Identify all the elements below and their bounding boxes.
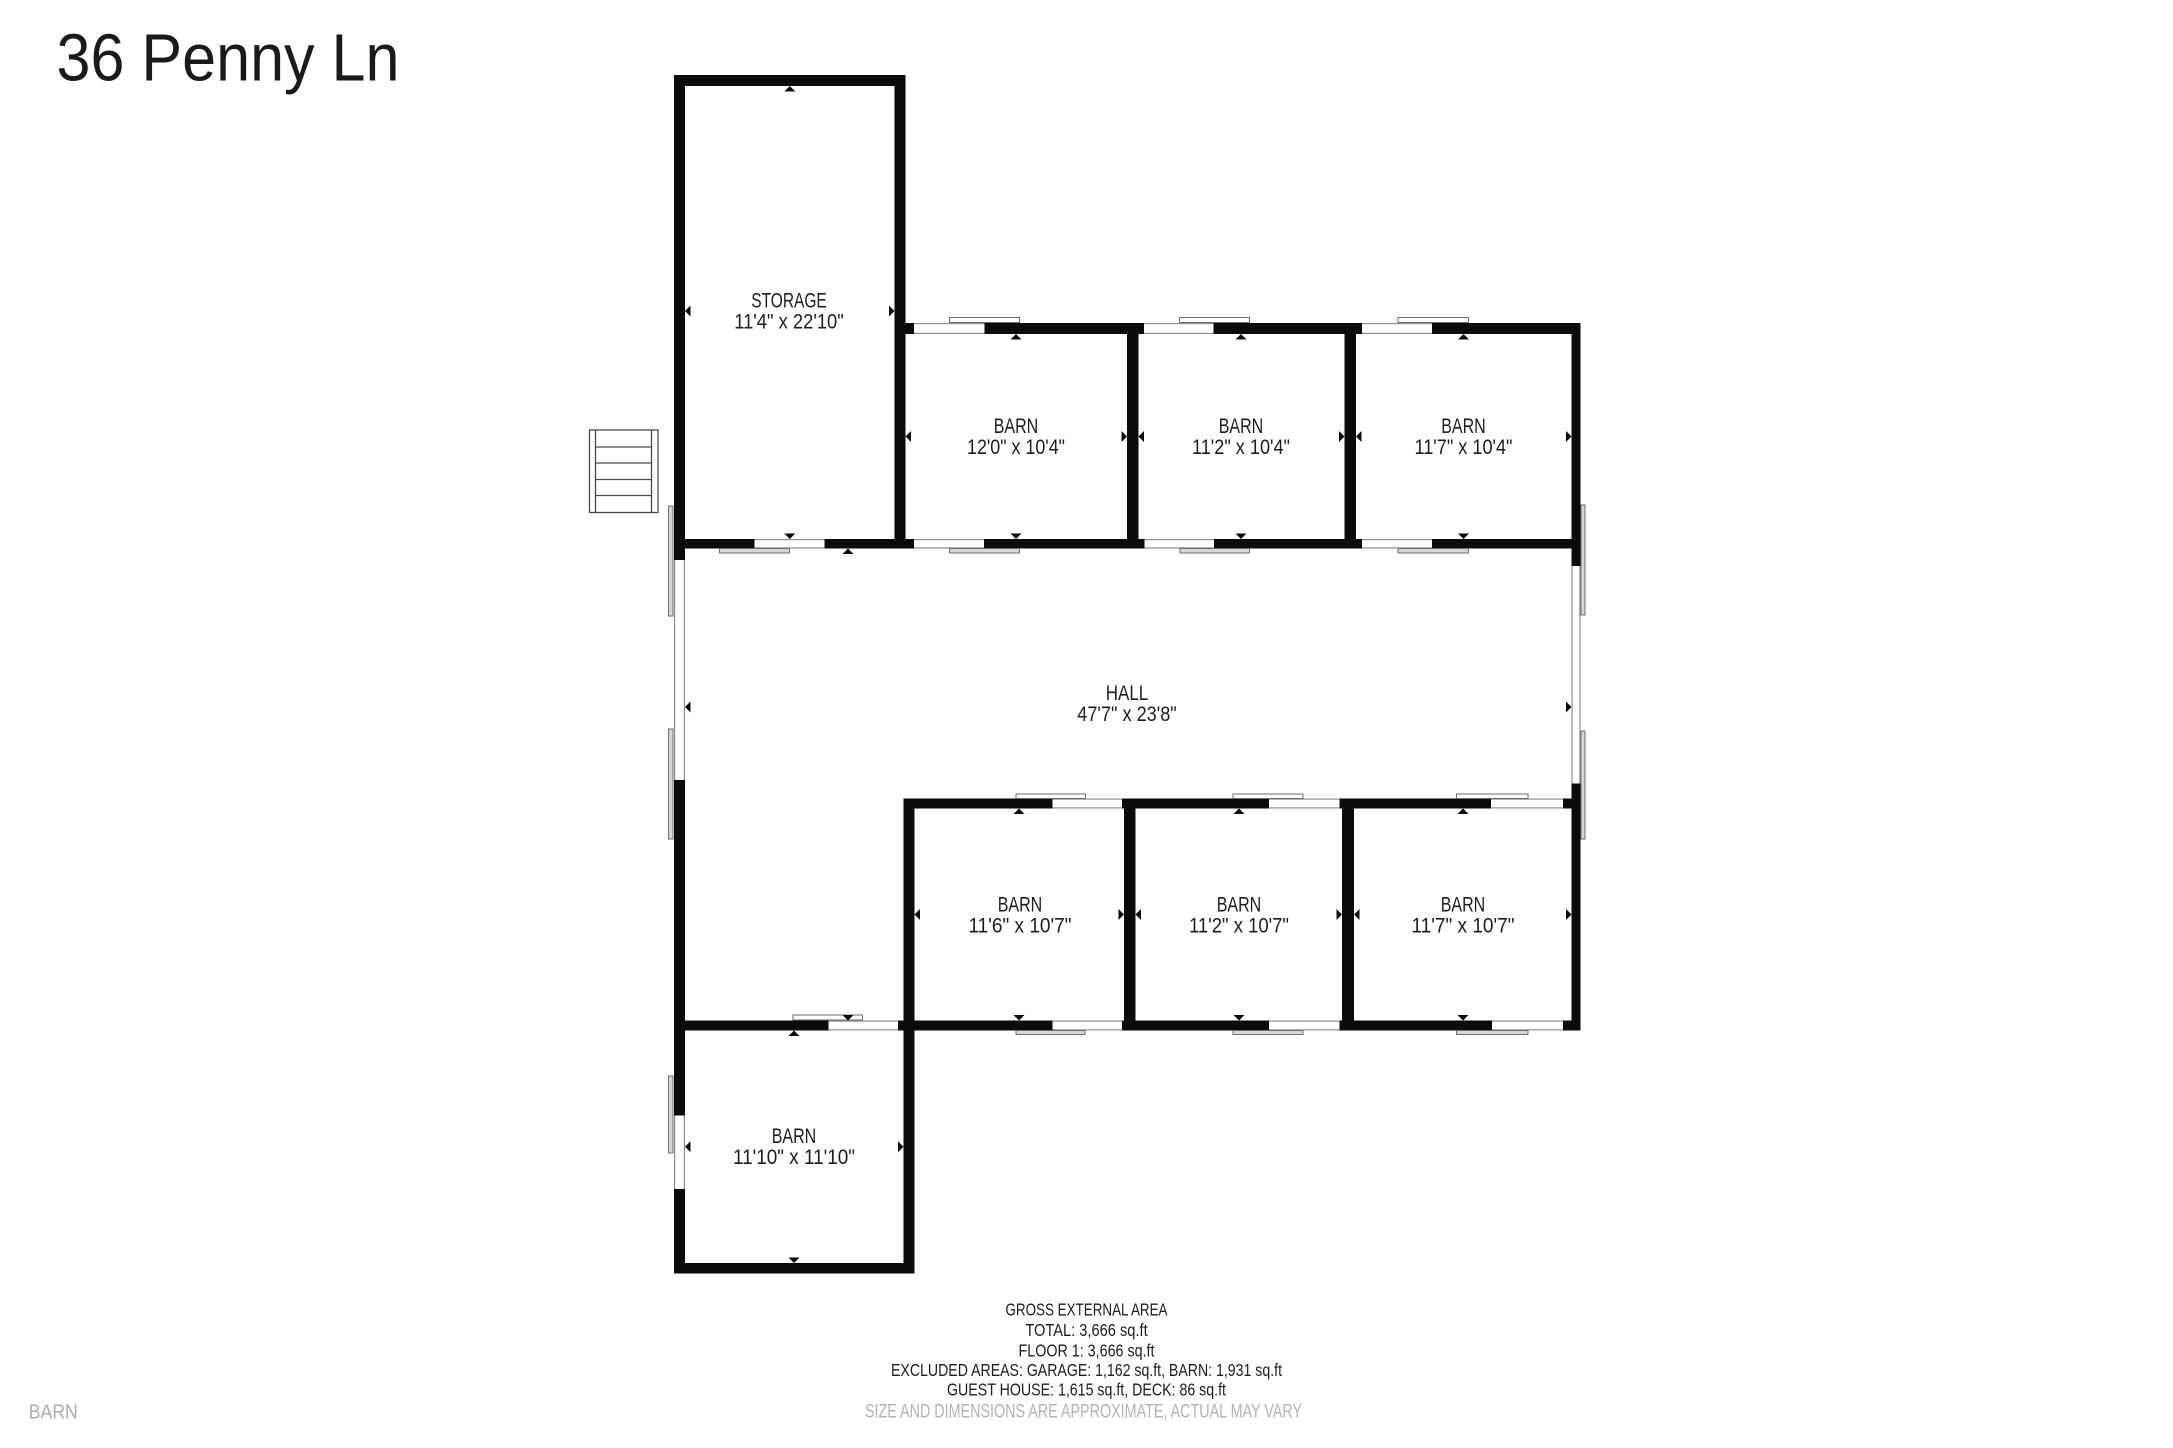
svg-text:11'2" x 10'4": 11'2" x 10'4"	[1192, 436, 1290, 459]
svg-text:HALL: HALL	[1106, 682, 1149, 705]
svg-text:BARN: BARN	[772, 1125, 817, 1148]
svg-text:BARN: BARN	[998, 894, 1043, 917]
svg-text:11'7" x 10'4": 11'7" x 10'4"	[1415, 436, 1513, 459]
svg-text:BARN: BARN	[994, 415, 1039, 438]
svg-text:11'7" x 10'7": 11'7" x 10'7"	[1412, 915, 1515, 938]
svg-text:12'0" x 10'4": 12'0" x 10'4"	[967, 436, 1065, 459]
svg-text:11'6" x 10'7": 11'6" x 10'7"	[969, 915, 1072, 938]
svg-text:11'4" x 22'10": 11'4" x 22'10"	[734, 311, 844, 334]
svg-text:BARN: BARN	[1441, 894, 1486, 917]
svg-text:GUEST HOUSE: 1,615 sq.ft, DECK: GUEST HOUSE: 1,615 sq.ft, DECK: 86 sq.ft	[947, 1380, 1226, 1400]
svg-text:TOTAL: 3,666 sq.ft: TOTAL: 3,666 sq.ft	[1025, 1320, 1147, 1340]
svg-text:SIZE AND DIMENSIONS ARE APPROX: SIZE AND DIMENSIONS ARE APPROXIMATE, ACT…	[865, 1402, 1302, 1423]
svg-text:11'10" x 11'10": 11'10" x 11'10"	[733, 1146, 855, 1169]
svg-text:BARN: BARN	[1441, 415, 1486, 438]
svg-text:BARN: BARN	[29, 1401, 78, 1423]
svg-text:BARN: BARN	[1219, 415, 1264, 438]
svg-text:FLOOR 1: 3,666 sq.ft: FLOOR 1: 3,666 sq.ft	[1019, 1340, 1155, 1360]
svg-text:11'2" x 10'7": 11'2" x 10'7"	[1189, 915, 1289, 938]
svg-text:STORAGE: STORAGE	[751, 290, 827, 313]
svg-text:BARN: BARN	[1217, 894, 1262, 917]
svg-text:GROSS EXTERNAL AREA: GROSS EXTERNAL AREA	[1006, 1300, 1168, 1320]
svg-text:47'7" x 23'8": 47'7" x 23'8"	[1077, 703, 1177, 726]
svg-text:36 Penny Ln: 36 Penny Ln	[57, 20, 400, 95]
svg-text:EXCLUDED AREAS: GARAGE: 1,162: EXCLUDED AREAS: GARAGE: 1,162 sq.ft, BAR…	[891, 1360, 1282, 1380]
